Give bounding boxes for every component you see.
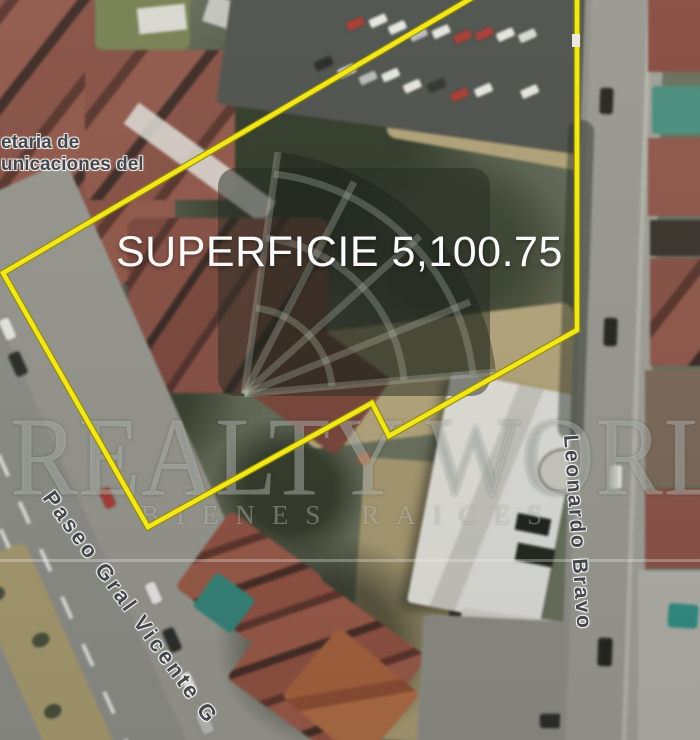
satellite-listing-image: REALTY WORLD BIENES RAICES SUPERFICIE 5,…	[0, 0, 700, 740]
poi-label: etaria de unicaciones del	[1, 132, 144, 176]
superficie-label: SUPERFICIE 5,100.75	[116, 228, 563, 277]
poi-label-line2: unicaciones del	[1, 154, 144, 176]
poi-label-line1: etaria de	[1, 132, 144, 154]
boundary-gap-mark	[572, 34, 580, 47]
